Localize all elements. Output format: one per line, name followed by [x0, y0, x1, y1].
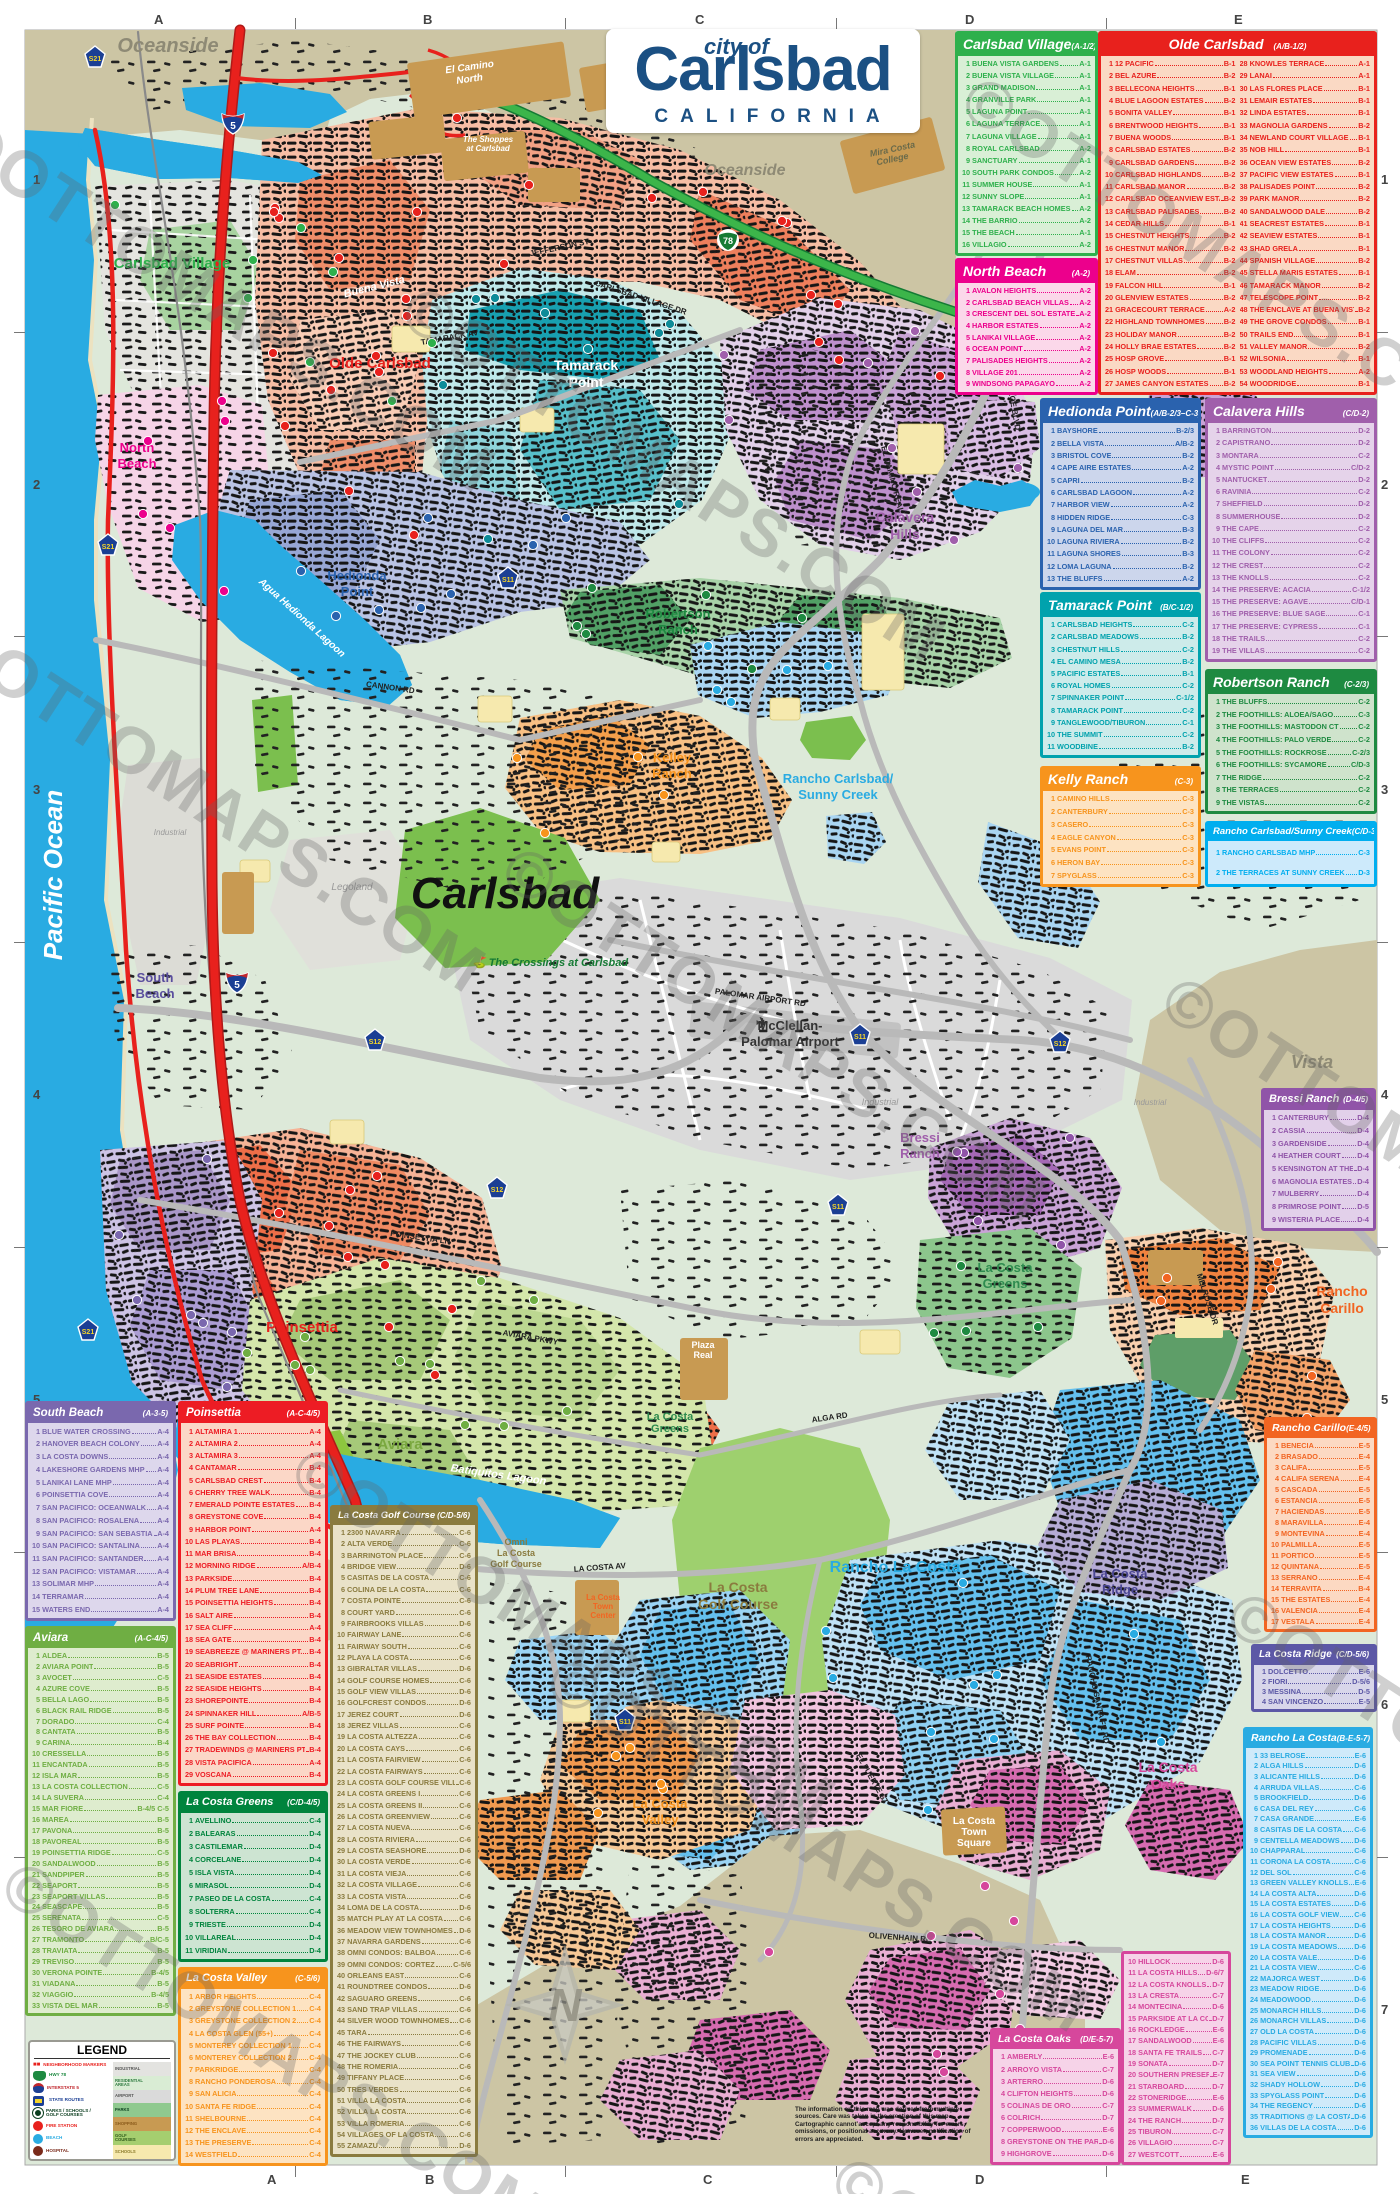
svg-text:Rancho: Rancho	[1316, 1283, 1367, 1299]
svg-text:La Costa: La Costa	[708, 1579, 767, 1595]
svg-text:Sunny Creek: Sunny Creek	[798, 787, 878, 802]
svg-text:Ridge: Ridge	[1102, 1582, 1138, 1597]
svg-text:5: 5	[230, 121, 236, 132]
svg-text:Oceanside: Oceanside	[705, 162, 786, 179]
svg-text:S12: S12	[1054, 1041, 1067, 1048]
svg-text:La Costa: La Costa	[647, 1411, 694, 1423]
svg-text:South: South	[137, 970, 174, 985]
svg-text:S11: S11	[832, 1204, 844, 1211]
svg-text:Pacific Ocean: Pacific Ocean	[38, 790, 68, 961]
svg-text:S21: S21	[102, 544, 115, 551]
svg-text:Robertson: Robertson	[646, 606, 711, 621]
svg-text:S21: S21	[89, 56, 102, 63]
svg-text:Oaks: Oaks	[1151, 1776, 1185, 1792]
svg-text:Point: Point	[341, 584, 374, 599]
svg-text:Hedionda: Hedionda	[327, 568, 387, 583]
svg-text:Ranch: Ranch	[658, 622, 698, 637]
svg-text:S12: S12	[491, 1187, 504, 1194]
svg-text:Hills: Hills	[890, 526, 920, 542]
svg-text:S11: S11	[854, 1034, 866, 1041]
svg-text:Town: Town	[961, 1827, 986, 1838]
svg-text:Greens: Greens	[651, 1423, 689, 1435]
svg-text:Kelley: Kelley	[653, 750, 692, 765]
svg-text:Beach: Beach	[117, 456, 156, 471]
svg-text:Ranch: Ranch	[652, 766, 692, 781]
svg-text:Industrial: Industrial	[1134, 1098, 1167, 1107]
svg-text:78: 78	[723, 236, 733, 246]
svg-text:Greens: Greens	[983, 1276, 1028, 1291]
svg-text:Square: Square	[957, 1838, 991, 1849]
svg-text:Beach: Beach	[135, 986, 174, 1001]
svg-text:Omni: Omni	[504, 1537, 527, 1547]
svg-text:Carillo: Carillo	[1320, 1300, 1364, 1316]
svg-text:Industrial: Industrial	[154, 828, 187, 837]
svg-text:The Shoppes: The Shoppes	[463, 135, 514, 144]
svg-text:La Costa: La Costa	[1138, 1759, 1197, 1775]
svg-text:N: N	[548, 1979, 582, 2031]
svg-text:La Costa: La Costa	[953, 1816, 996, 1827]
svg-text:Rancho Carlsbad/: Rancho Carlsbad/	[783, 771, 894, 786]
svg-text:at Carlsbad: at Carlsbad	[466, 144, 511, 153]
svg-text:Golf Course: Golf Course	[698, 1596, 778, 1612]
svg-text:Plaza: Plaza	[691, 1340, 715, 1350]
svg-text:Oceanside: Oceanside	[117, 35, 218, 57]
svg-text:S12: S12	[369, 1039, 382, 1046]
svg-text:S21: S21	[82, 1329, 95, 1336]
svg-text:La Costa: La Costa	[978, 1260, 1034, 1275]
svg-text:La Costa: La Costa	[1093, 1566, 1149, 1581]
svg-text:Valley: Valley	[642, 1812, 680, 1827]
svg-text:Rancho La Costa: Rancho La Costa	[830, 1559, 961, 1576]
svg-text:Real: Real	[693, 1350, 712, 1360]
svg-text:La Costa: La Costa	[586, 1593, 620, 1602]
svg-text:Aviara: Aviara	[377, 1436, 423, 1453]
svg-text:5: 5	[234, 980, 240, 991]
svg-text:S11: S11	[502, 577, 514, 584]
